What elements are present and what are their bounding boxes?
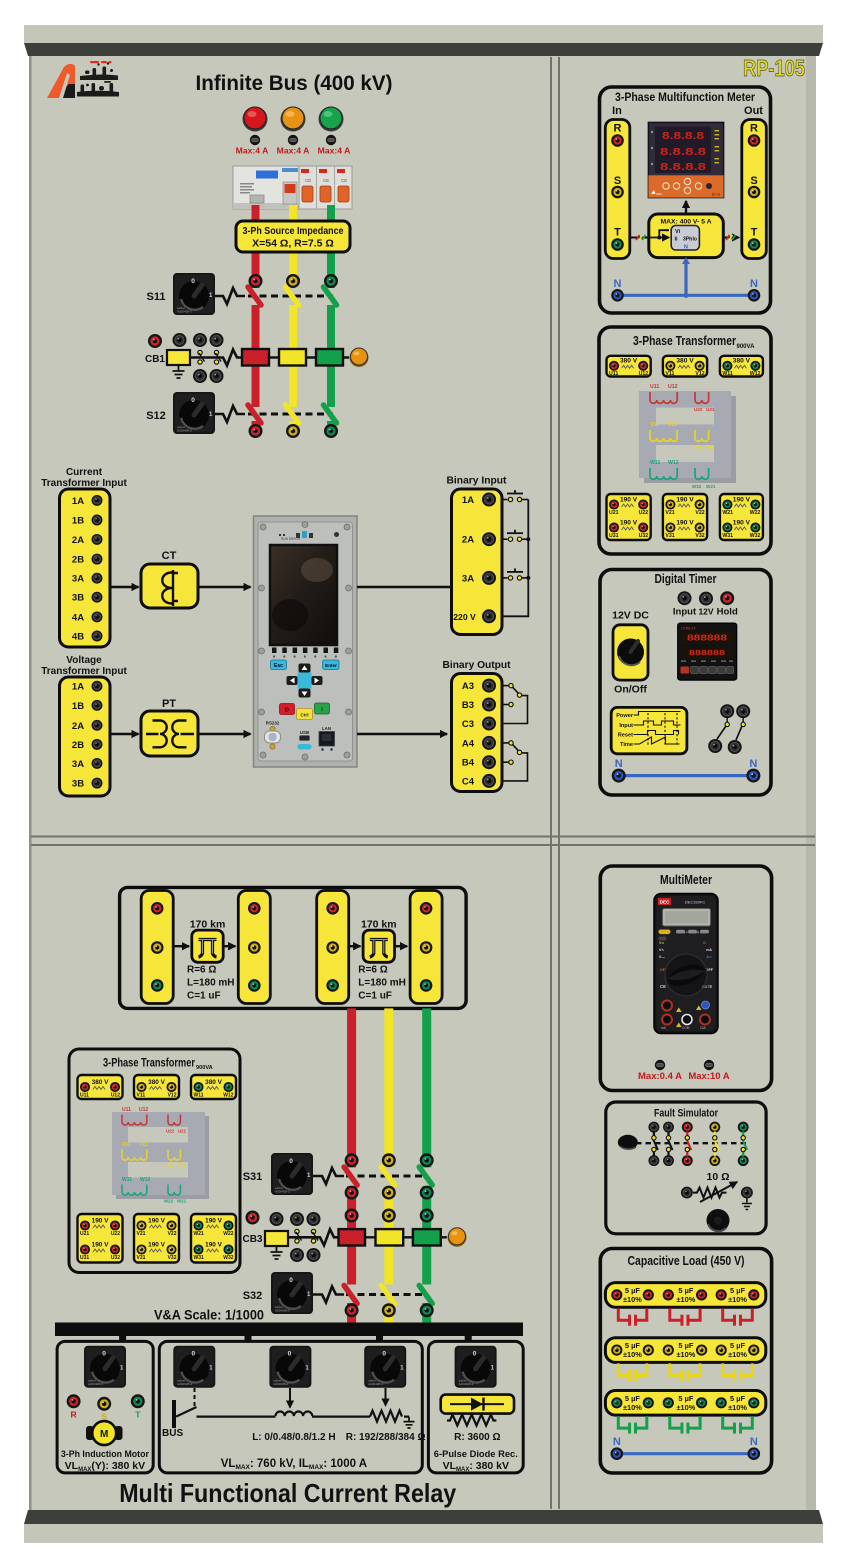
svg-text:380 V: 380 V <box>148 1079 165 1086</box>
svg-text:Out: Out <box>744 105 763 117</box>
svg-text:Infinite Bus (400 kV): Infinite Bus (400 kV) <box>196 72 393 95</box>
svg-text:190 V: 190 V <box>148 1241 165 1248</box>
svg-text:5 µF: 5 µF <box>625 1341 640 1350</box>
svg-text:S: S <box>614 175 621 187</box>
svg-text:C3: C3 <box>462 719 474 730</box>
svg-text:CE: CE <box>305 178 311 183</box>
svg-text:5 µF: 5 µF <box>678 1286 693 1295</box>
svg-text:±10%: ±10% <box>728 1403 747 1412</box>
svg-text:U31: U31 <box>80 1255 89 1261</box>
svg-text:2B: 2B <box>72 555 84 566</box>
svg-text:W22: W22 <box>223 1231 234 1237</box>
svg-text:LAN: LAN <box>322 726 331 731</box>
svg-text:Transformer Input: Transformer Input <box>41 478 127 489</box>
svg-text:V&A Scale: 1/1000: V&A Scale: 1/1000 <box>154 1307 264 1323</box>
svg-text:Ctrl: Ctrl <box>300 713 308 719</box>
svg-text:3A: 3A <box>72 574 84 585</box>
svg-text:Time: Time <box>620 742 633 748</box>
svg-text:190 V: 190 V <box>148 1217 165 1224</box>
svg-text:W11: W11 <box>122 1177 132 1183</box>
svg-text:V31: V31 <box>665 533 674 539</box>
svg-text:6-Pulse Diode Rec.: 6-Pulse Diode Rec. <box>434 1449 518 1459</box>
svg-text:W12: W12 <box>668 460 679 466</box>
svg-text:Fault Simulator: Fault Simulator <box>654 1108 719 1120</box>
svg-text:V21: V21 <box>178 1164 186 1169</box>
svg-text:4B: 4B <box>72 632 84 643</box>
svg-text:V11: V11 <box>137 1092 146 1098</box>
svg-text:Input: Input <box>673 607 697 618</box>
svg-text:V22: V22 <box>695 510 704 516</box>
svg-text:V32: V32 <box>168 1255 177 1261</box>
svg-text:V12: V12 <box>695 371 704 377</box>
svg-text:Input: Input <box>619 723 633 729</box>
svg-text:V12: V12 <box>139 1142 148 1148</box>
svg-text:380 V: 380 V <box>92 1079 109 1086</box>
svg-text:±10%: ±10% <box>623 1295 642 1304</box>
svg-text:L: 0/0.48/0.8/1.2 H: L: 0/0.48/0.8/1.2 H <box>252 1432 335 1443</box>
svg-text:3A: 3A <box>462 573 474 584</box>
svg-text:V12: V12 <box>168 1092 177 1098</box>
svg-text:ADV: ADV <box>656 192 662 196</box>
svg-text:Reset: Reset <box>618 733 633 739</box>
svg-text:380 V: 380 V <box>620 358 638 365</box>
svg-text:V31: V31 <box>137 1255 146 1261</box>
svg-text:W11: W11 <box>650 460 660 466</box>
svg-text:W21: W21 <box>194 1231 205 1237</box>
svg-text:RP-105: RP-105 <box>743 55 805 81</box>
svg-text:5 µF: 5 µF <box>678 1394 693 1403</box>
svg-text:380 V: 380 V <box>205 1079 222 1086</box>
svg-text:Hold: Hold <box>717 607 738 618</box>
svg-text:900VA: 900VA <box>737 344 756 350</box>
svg-text:W12: W12 <box>140 1177 151 1183</box>
svg-text:Max:0.4 A: Max:0.4 A <box>638 1071 682 1082</box>
svg-text:U11: U11 <box>609 371 618 377</box>
svg-text:U12: U12 <box>111 1092 120 1098</box>
svg-text:U22: U22 <box>166 1129 175 1134</box>
svg-text:U12: U12 <box>668 384 678 390</box>
svg-text:3B: 3B <box>72 779 84 790</box>
svg-text:12V: 12V <box>698 607 713 617</box>
svg-text:±10%: ±10% <box>676 1403 695 1412</box>
svg-text:In: In <box>612 105 622 117</box>
svg-text:B4: B4 <box>462 758 475 769</box>
svg-text:220 V: 220 V <box>453 612 476 622</box>
svg-text:W22: W22 <box>692 484 702 489</box>
svg-text:V21: V21 <box>137 1231 146 1237</box>
svg-text:±10%: ±10% <box>728 1350 747 1359</box>
svg-text:W11: W11 <box>194 1092 204 1098</box>
svg-text:3-Phase Transformer: 3-Phase Transformer <box>633 333 736 348</box>
svg-text:Max:10 A: Max:10 A <box>688 1071 729 1082</box>
svg-text:190 V: 190 V <box>205 1217 222 1224</box>
svg-text:1A: 1A <box>72 682 84 693</box>
svg-text:mA: mA <box>706 948 712 952</box>
svg-text:Current: Current <box>66 467 103 478</box>
svg-text:Ω: Ω <box>703 941 706 945</box>
svg-text:±10%: ±10% <box>623 1350 642 1359</box>
svg-text:U32: U32 <box>111 1255 120 1261</box>
svg-text:U21: U21 <box>80 1231 89 1237</box>
svg-text:S32: S32 <box>243 1290 263 1302</box>
svg-text:8.8.8.8: 8.8.8.8 <box>660 146 706 158</box>
svg-text:CE: CE <box>323 178 329 183</box>
svg-text:MAX: 400 V- 5 A: MAX: 400 V- 5 A <box>660 219 711 226</box>
svg-text:CTR8-1F: CTR8-1F <box>681 627 697 631</box>
svg-text:CT: CT <box>162 550 177 562</box>
svg-text:N: N <box>614 278 622 290</box>
svg-text:U22: U22 <box>639 510 649 516</box>
svg-text:R=6 Ω: R=6 Ω <box>187 965 216 976</box>
svg-text:2B: 2B <box>72 740 84 751</box>
svg-text:W22: W22 <box>750 510 761 516</box>
svg-text:CB3: CB3 <box>242 1234 262 1245</box>
svg-text:±10%: ±10% <box>676 1295 695 1304</box>
svg-text:Max:4 A: Max:4 A <box>318 146 351 156</box>
svg-text:10 Ω: 10 Ω <box>706 1171 729 1183</box>
svg-text:888888: 888888 <box>687 633 727 643</box>
svg-text:T: T <box>751 227 758 239</box>
svg-text:USB: USB <box>300 730 309 735</box>
svg-text:V11: V11 <box>650 422 659 428</box>
svg-text:V—: V— <box>659 955 665 959</box>
svg-text:1B: 1B <box>72 516 84 527</box>
svg-text:Max:4 A: Max:4 A <box>236 146 269 156</box>
svg-text:888888: 888888 <box>689 650 725 657</box>
svg-text:5 µF: 5 µF <box>678 1341 693 1350</box>
svg-text:380 V: 380 V <box>676 358 694 365</box>
svg-text:5 µF: 5 µF <box>730 1341 745 1350</box>
svg-text:VLMAX(Y): 380 kV: VLMAX(Y): 380 kV <box>65 1460 145 1473</box>
svg-text:±10%: ±10% <box>728 1295 747 1304</box>
svg-text:3-Phase Transformer: 3-Phase Transformer <box>103 1058 195 1070</box>
svg-text:R: R <box>614 123 622 135</box>
svg-text:B3: B3 <box>462 700 474 711</box>
svg-text:S: S <box>750 175 757 187</box>
svg-text:S11: S11 <box>147 291 166 303</box>
svg-text:5 µF: 5 µF <box>625 1394 640 1403</box>
svg-text:V21: V21 <box>706 445 715 450</box>
svg-text:10A: 10A <box>700 1026 707 1030</box>
svg-text:U31: U31 <box>609 533 619 539</box>
svg-text:R: 3600 Ω: R: 3600 Ω <box>454 1432 500 1443</box>
svg-text:3-Phase Multifunction Meter: 3-Phase Multifunction Meter <box>615 90 755 104</box>
svg-text:3Ph: 3Ph <box>683 237 692 243</box>
svg-text:Ii: Ii <box>675 237 679 243</box>
svg-text:X=54 Ω, R=7.5 Ω: X=54 Ω, R=7.5 Ω <box>252 238 334 250</box>
svg-text:5 µF: 5 µF <box>730 1394 745 1403</box>
svg-text:190 V: 190 V <box>205 1241 222 1248</box>
svg-text:U11: U11 <box>80 1092 89 1098</box>
svg-text:900VA: 900VA <box>196 1065 213 1071</box>
svg-text:2A: 2A <box>72 535 84 546</box>
svg-text:V22: V22 <box>168 1231 177 1237</box>
svg-text:Capacitive Load (450 V): Capacitive Load (450 V) <box>628 1254 745 1268</box>
svg-text:Multi Functional Current Relay: Multi Functional Current Relay <box>119 1478 456 1508</box>
svg-text:190 V: 190 V <box>676 519 694 526</box>
svg-text:4A: 4A <box>72 612 84 623</box>
svg-text:U12: U12 <box>639 371 649 377</box>
svg-text:U32: U32 <box>639 533 649 539</box>
svg-text:RUN ERROR: RUN ERROR <box>281 537 301 541</box>
svg-text:W31: W31 <box>194 1255 205 1261</box>
svg-text:R=6 Ω: R=6 Ω <box>358 965 387 976</box>
svg-text:C=1 uF: C=1 uF <box>187 991 221 1002</box>
svg-text:M: M <box>100 1429 108 1440</box>
svg-text:W21: W21 <box>177 1199 187 1204</box>
svg-text:U11: U11 <box>122 1107 131 1113</box>
svg-text:V12: V12 <box>668 422 677 428</box>
svg-text:Vi: Vi <box>675 229 681 235</box>
svg-text:U21: U21 <box>609 510 619 516</box>
svg-text:N: N <box>750 1436 758 1448</box>
svg-text:A3: A3 <box>462 681 474 692</box>
svg-text:3A: 3A <box>72 759 84 770</box>
svg-text:A∿: A∿ <box>706 955 713 959</box>
svg-text:5 µF: 5 µF <box>730 1286 745 1295</box>
svg-text:8.8.8.8: 8.8.8.8 <box>662 130 704 142</box>
svg-text:1A: 1A <box>72 496 84 507</box>
svg-text:On/Off: On/Off <box>614 684 647 696</box>
svg-text:W32: W32 <box>750 533 761 539</box>
svg-text:U22: U22 <box>694 407 703 412</box>
svg-text:COM: COM <box>682 1026 690 1030</box>
svg-text:DI-13: DI-13 <box>712 193 720 197</box>
svg-text:W21: W21 <box>722 510 733 516</box>
svg-text:190 V: 190 V <box>92 1217 109 1224</box>
svg-text:Binary Output: Binary Output <box>443 659 511 671</box>
svg-text:W22: W22 <box>164 1199 174 1204</box>
svg-text:L=180 mH: L=180 mH <box>358 978 406 989</box>
svg-text:N: N <box>684 245 688 251</box>
svg-text:MultiMeter: MultiMeter <box>660 873 712 887</box>
svg-text:380 V: 380 V <box>733 358 751 365</box>
svg-text:V22: V22 <box>694 445 703 450</box>
svg-text:DEC: DEC <box>660 900 670 905</box>
svg-text:C=1 uF: C=1 uF <box>358 991 392 1002</box>
svg-text:T: T <box>614 227 621 239</box>
svg-text:W31: W31 <box>722 533 733 539</box>
svg-text:2A: 2A <box>72 721 84 732</box>
svg-text:N: N <box>615 758 623 770</box>
svg-text:Transformer Input: Transformer Input <box>41 666 127 677</box>
svg-text:W12: W12 <box>223 1092 234 1098</box>
svg-text:W12: W12 <box>750 371 761 377</box>
svg-text:190 V: 190 V <box>620 519 638 526</box>
svg-text:U12: U12 <box>139 1107 148 1113</box>
svg-text:1A: 1A <box>462 495 474 506</box>
svg-text:8.8.8.8: 8.8.8.8 <box>660 161 706 173</box>
svg-text:U22: U22 <box>111 1231 120 1237</box>
svg-text:V11: V11 <box>665 371 674 377</box>
svg-text:U21: U21 <box>178 1129 187 1134</box>
svg-text:5 µF: 5 µF <box>625 1286 640 1295</box>
svg-text:S12: S12 <box>146 410 166 422</box>
svg-text:±10%: ±10% <box>676 1350 695 1359</box>
svg-text:1B: 1B <box>72 701 84 712</box>
svg-text:CE: CE <box>660 984 666 989</box>
svg-text:12V DC: 12V DC <box>612 610 649 622</box>
svg-text:S31: S31 <box>243 1171 263 1183</box>
svg-text:BUS: BUS <box>162 1428 183 1439</box>
svg-text:R: R <box>750 123 758 135</box>
svg-text:W21: W21 <box>706 484 716 489</box>
svg-text:190 V: 190 V <box>92 1241 109 1248</box>
svg-text:V⋍: V⋍ <box>659 941 664 945</box>
svg-text:N: N <box>613 1436 621 1448</box>
svg-text:Esc: Esc <box>274 663 283 669</box>
svg-text:N: N <box>749 758 757 770</box>
svg-text:190 V: 190 V <box>676 496 694 503</box>
svg-text:CB1: CB1 <box>145 354 165 365</box>
svg-text:CATⅢ: CATⅢ <box>702 985 712 989</box>
svg-text:CE: CE <box>341 178 347 183</box>
svg-text:Power: Power <box>616 713 634 719</box>
svg-text:V32: V32 <box>695 533 704 539</box>
svg-text:D: D <box>285 708 289 714</box>
svg-text:W11: W11 <box>722 371 732 377</box>
svg-text:Digital Timer: Digital Timer <box>655 572 717 586</box>
svg-text:RS232: RS232 <box>266 721 280 726</box>
svg-text:U11: U11 <box>650 384 659 390</box>
svg-text:R: R <box>71 1410 77 1420</box>
svg-text:PT: PT <box>162 698 176 710</box>
svg-text:T: T <box>135 1410 141 1420</box>
svg-text:U21: U21 <box>706 407 715 412</box>
svg-text:A4: A4 <box>462 738 475 749</box>
svg-text:VLMAX: 380 kV: VLMAX: 380 kV <box>443 1460 509 1473</box>
svg-text:2A: 2A <box>462 535 474 546</box>
svg-text:V21: V21 <box>665 510 674 516</box>
svg-text:Enter: Enter <box>325 663 337 668</box>
svg-text:Max:4 A: Max:4 A <box>277 146 310 156</box>
svg-text:±10%: ±10% <box>623 1403 642 1412</box>
svg-text:V22: V22 <box>166 1164 174 1169</box>
svg-text:C4: C4 <box>462 776 475 787</box>
svg-text:Voltage: Voltage <box>66 655 102 666</box>
svg-text:R: 192/288/384 Ω: R: 192/288/384 Ω <box>346 1432 426 1443</box>
svg-text:L=180 mH: L=180 mH <box>187 978 235 989</box>
svg-text:3B: 3B <box>72 593 84 604</box>
svg-text:190 V: 190 V <box>620 496 638 503</box>
svg-text:Binary Input: Binary Input <box>447 475 507 487</box>
svg-text:3-Ph Induction Motor: 3-Ph Induction Motor <box>61 1449 149 1459</box>
svg-text:190 V: 190 V <box>733 496 751 503</box>
svg-text:3-Ph Source Impedance: 3-Ph Source Impedance <box>243 225 344 237</box>
svg-text:Io: Io <box>693 237 697 243</box>
svg-text:V11: V11 <box>122 1142 131 1148</box>
svg-text:190 V: 190 V <box>733 519 751 526</box>
svg-text:W32: W32 <box>223 1255 234 1261</box>
svg-text:N: N <box>750 278 758 290</box>
svg-text:DEC330FC: DEC330FC <box>685 900 706 905</box>
